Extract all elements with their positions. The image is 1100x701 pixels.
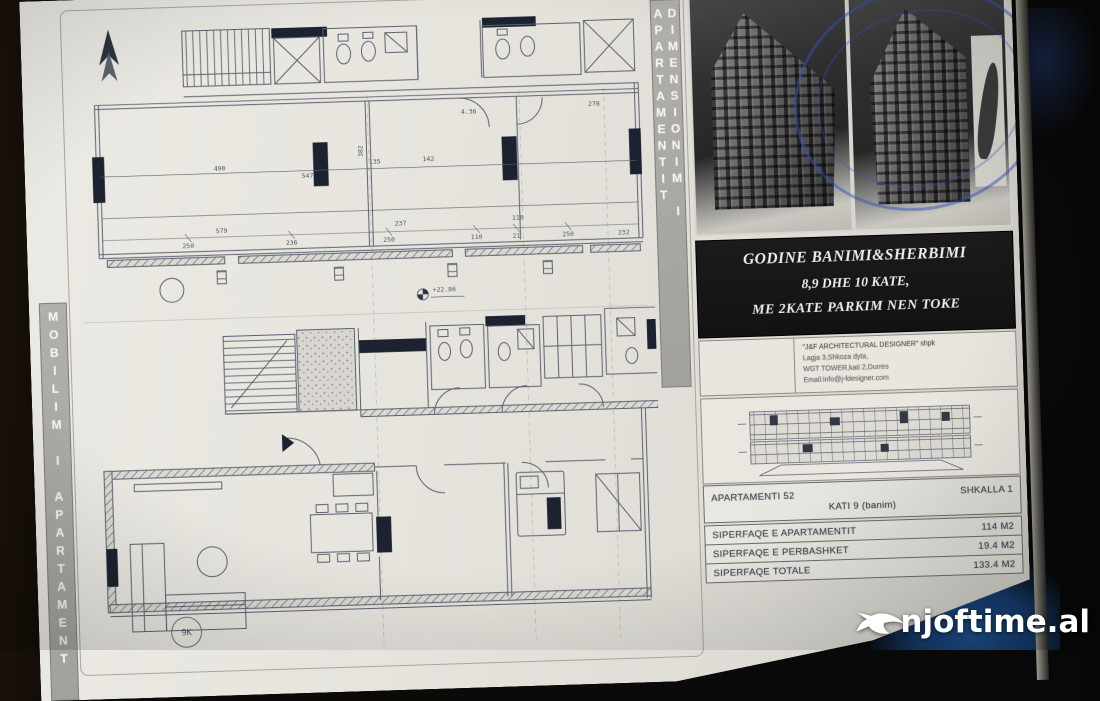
floor-plan-dimensioned (88, 13, 646, 305)
stairs (223, 334, 297, 414)
dimension-label: 142 (422, 155, 434, 163)
background-blue-smudge (1020, 8, 1100, 138)
level-marker-value: +22.86 (433, 285, 457, 294)
stair-label: SHKALLA 1 (960, 483, 1013, 496)
dimension-label: 382 (356, 145, 364, 157)
plan-sheet: +22.86 490 547 135 142 4.36 278 579 237 … (19, 0, 1032, 701)
grid-lines (367, 88, 621, 644)
dimension-label: 21 (512, 232, 520, 240)
sheet-circle-label: 9K (181, 627, 192, 637)
sheet-circle: 9K (171, 617, 202, 648)
sofa (130, 541, 246, 632)
row-label: SIPERFAQE E APARTAMENTIT (712, 525, 856, 541)
row-value: 133.4 M2 (973, 558, 1015, 570)
wardrobe (596, 473, 642, 532)
dimension-label: 4.36 (461, 108, 477, 116)
info-table: APARTAMENTI 52 SHKALLA 1 KATI 9 (banim) … (703, 477, 1024, 584)
architect-block-spacer (699, 339, 796, 396)
architect-block: "J&F ARCHITECTURAL DESIGNER" shpk Lagja … (698, 331, 1018, 397)
north-arrow-icon (98, 29, 120, 81)
dimension-label: 135 (369, 157, 381, 165)
banner-line3: ME 2KATE PARKIM NEN TOKE (698, 295, 1014, 321)
strip-mobilim-label: MOBILIM I APARTAMENT (46, 304, 72, 700)
dimension-label: 490 (214, 164, 226, 172)
photo-scene: +22.86 490 547 135 142 4.36 278 579 237 … (0, 0, 1100, 650)
banner-line2: 8,9 DHE 10 KATE, (697, 270, 1013, 296)
row-value: 19.4 M2 (978, 539, 1015, 551)
window-section-symbols (217, 260, 553, 283)
row-label: SIPERFAQE E PERBASHKET (713, 544, 849, 559)
dimension-label: 232 (618, 228, 630, 236)
dining-table (310, 503, 373, 563)
dimension-label: 547 (302, 171, 314, 179)
dimension-label: 250 (182, 242, 194, 250)
dimension-label: 236 (286, 239, 298, 247)
key-plan (700, 389, 1021, 485)
detail-circle (160, 278, 185, 303)
bird-logo-icon (854, 604, 906, 640)
floor-plan-furnished (99, 307, 666, 633)
dimension-label: 110 (471, 233, 483, 241)
banner-line1: GODINE BANIMI&SHERBIMI (696, 243, 1012, 271)
dimension-label: 237 (395, 219, 407, 227)
title-banner: GODINE BANIMI&SHERBIMI 8,9 DHE 10 KATE, … (695, 231, 1016, 339)
watermark-text: njoftime.al (900, 604, 1090, 640)
level-marker: +22.86 (417, 285, 465, 300)
dimension-label: 110 (512, 214, 524, 222)
dimension-lines (101, 160, 639, 244)
row-value: 114 M2 (981, 520, 1014, 532)
dimension-labels: 490 547 135 142 4.36 278 579 237 110 382… (178, 99, 630, 250)
shaft (297, 328, 357, 411)
row-label: SIPERFAQE TOTALE (713, 565, 811, 579)
dimension-label: 278 (588, 100, 600, 108)
dimension-label: 250 (383, 236, 395, 244)
watermark: njoftime.al (854, 604, 1090, 640)
tv-unit (134, 482, 222, 492)
dimension-label: 250 (562, 230, 574, 238)
floor-plans: +22.86 490 547 135 142 4.36 278 579 237 … (63, 0, 665, 666)
coffee-table (197, 546, 228, 577)
dimension-label: 579 (216, 227, 228, 235)
structural-columns (105, 497, 563, 587)
